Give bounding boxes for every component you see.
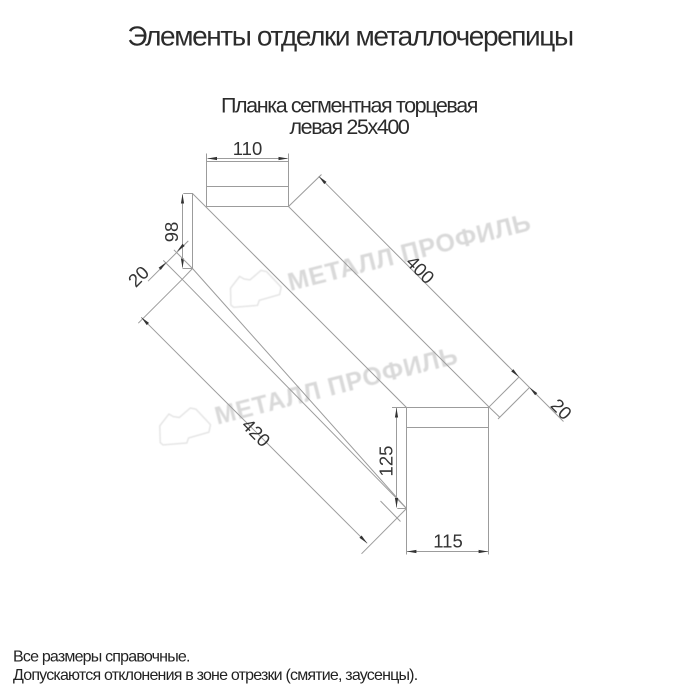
svg-text:110: 110	[233, 138, 263, 159]
svg-text:115: 115	[433, 531, 463, 552]
svg-text:левая 25х400: левая 25х400	[290, 115, 410, 139]
svg-text:98: 98	[161, 222, 182, 243]
svg-text:125: 125	[375, 446, 396, 477]
svg-text:Допускаются отклонения в зоне: Допускаются отклонения в зоне отрезки (с…	[13, 667, 417, 684]
svg-text:Все размеры справочные.: Все размеры справочные.	[13, 649, 190, 666]
svg-text:Элементы отделки металлочерепи: Элементы отделки металлочерепицы	[127, 21, 573, 52]
svg-text:Планка сегментная торцевая: Планка сегментная торцевая	[221, 94, 478, 118]
